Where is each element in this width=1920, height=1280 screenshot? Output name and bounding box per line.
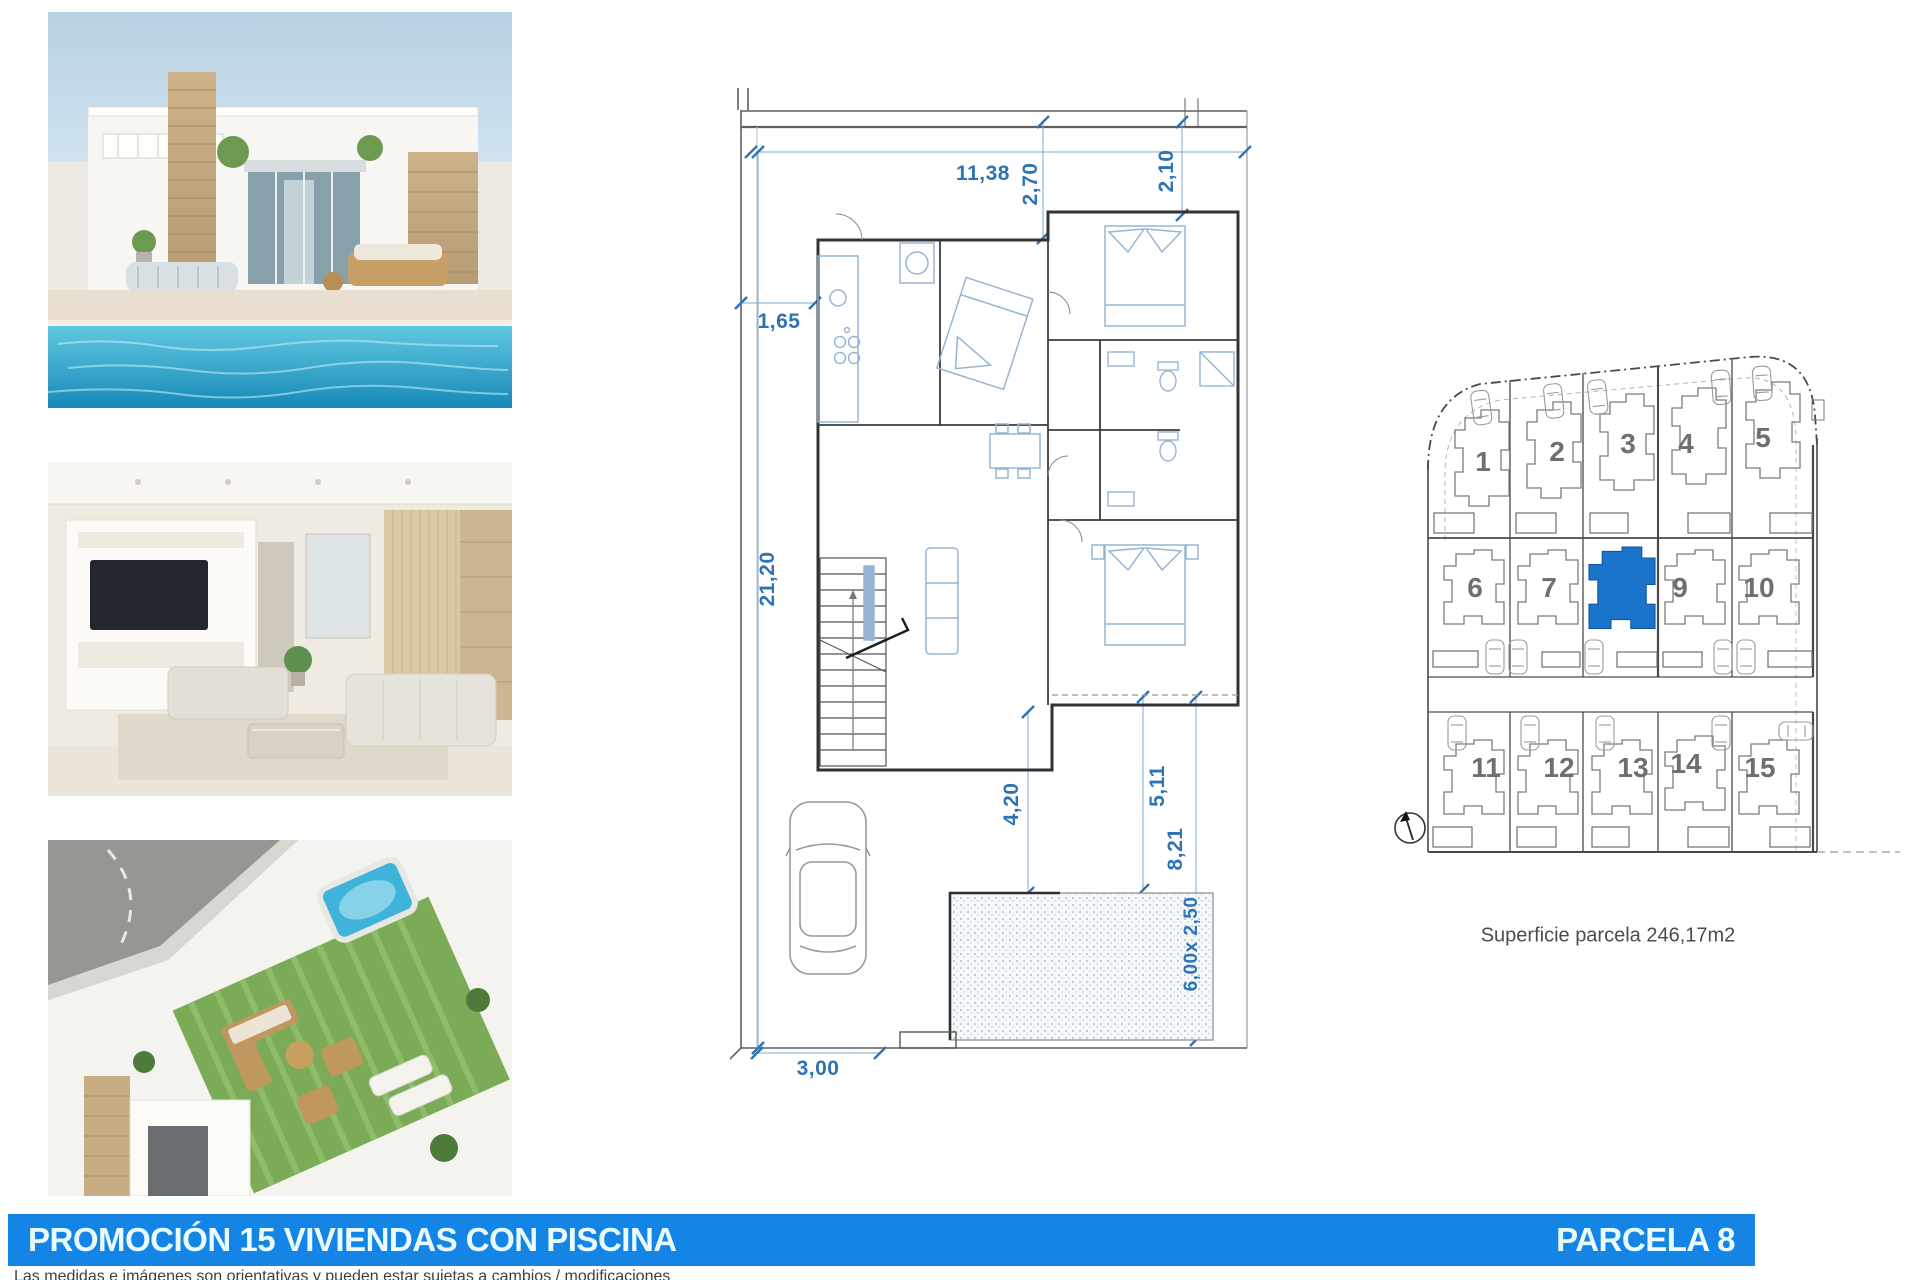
pool: [950, 893, 1213, 1040]
photo-rooftop-terrace-aerial: [48, 840, 512, 1196]
dimension-label: 4,20: [1000, 783, 1024, 826]
highlighted-plot-8: [1589, 547, 1655, 628]
dimension-label: 5,11: [1146, 765, 1170, 807]
promotion-title: PROMOCIÓN 15 VIVIENDAS CON PISCINA: [28, 1221, 677, 1259]
plot-number: 2: [1549, 436, 1565, 468]
parcel-label: PARCELA 8: [1556, 1221, 1735, 1259]
dimension-label: 21,20: [756, 551, 780, 606]
interior-walls: [818, 240, 1238, 705]
plot-number: 7: [1541, 572, 1557, 604]
bath-fixtures: [1108, 352, 1234, 506]
photo-living-room-interior: [48, 462, 512, 796]
doors: [836, 214, 1082, 542]
dimension-label: 11,38: [956, 162, 1010, 186]
plot-number: 13: [1617, 752, 1648, 784]
disclaimer-text: Las medidas e imágenes son orientativas …: [14, 1268, 670, 1280]
plot-number: 12: [1543, 752, 1574, 784]
north-arrow-icon: [1395, 811, 1425, 843]
plot-number: 14: [1670, 748, 1701, 780]
dimension-label: 2,10: [1155, 150, 1179, 193]
plot-number: 9: [1672, 572, 1688, 604]
plot-number: 4: [1678, 428, 1694, 460]
brochure-page: 11,38 2,70 2,10 1,65 21,20 4,20 5,11 8,2…: [0, 0, 1920, 1280]
plot-number: 3: [1620, 428, 1636, 460]
entry-step: [900, 1032, 956, 1048]
plot-number: 6: [1467, 572, 1483, 604]
plot-number: 5: [1755, 422, 1771, 454]
stairs: [820, 558, 886, 766]
plot-number: 10: [1743, 572, 1774, 604]
plot-number: 15: [1744, 752, 1775, 784]
dimension-label: 8,21: [1164, 828, 1188, 871]
dimension-label: 3,00: [797, 1057, 840, 1081]
parcel-area-caption: Superficie parcela 246,17m2: [1481, 925, 1736, 948]
title-banner: PROMOCIÓN 15 VIVIENDAS CON PISCINA PARCE…: [8, 1214, 1755, 1266]
pool-size-label: 6,00x 2,50: [1181, 897, 1203, 992]
photo-villa-exterior-pool: [48, 12, 512, 408]
plot-number: 1: [1475, 446, 1491, 478]
dimension-label: 1,65: [758, 310, 801, 334]
dimension-label: 2,70: [1019, 163, 1043, 206]
car-outline: [786, 802, 870, 974]
site-plan: [1385, 275, 1905, 975]
plot-number: 11: [1471, 752, 1501, 784]
